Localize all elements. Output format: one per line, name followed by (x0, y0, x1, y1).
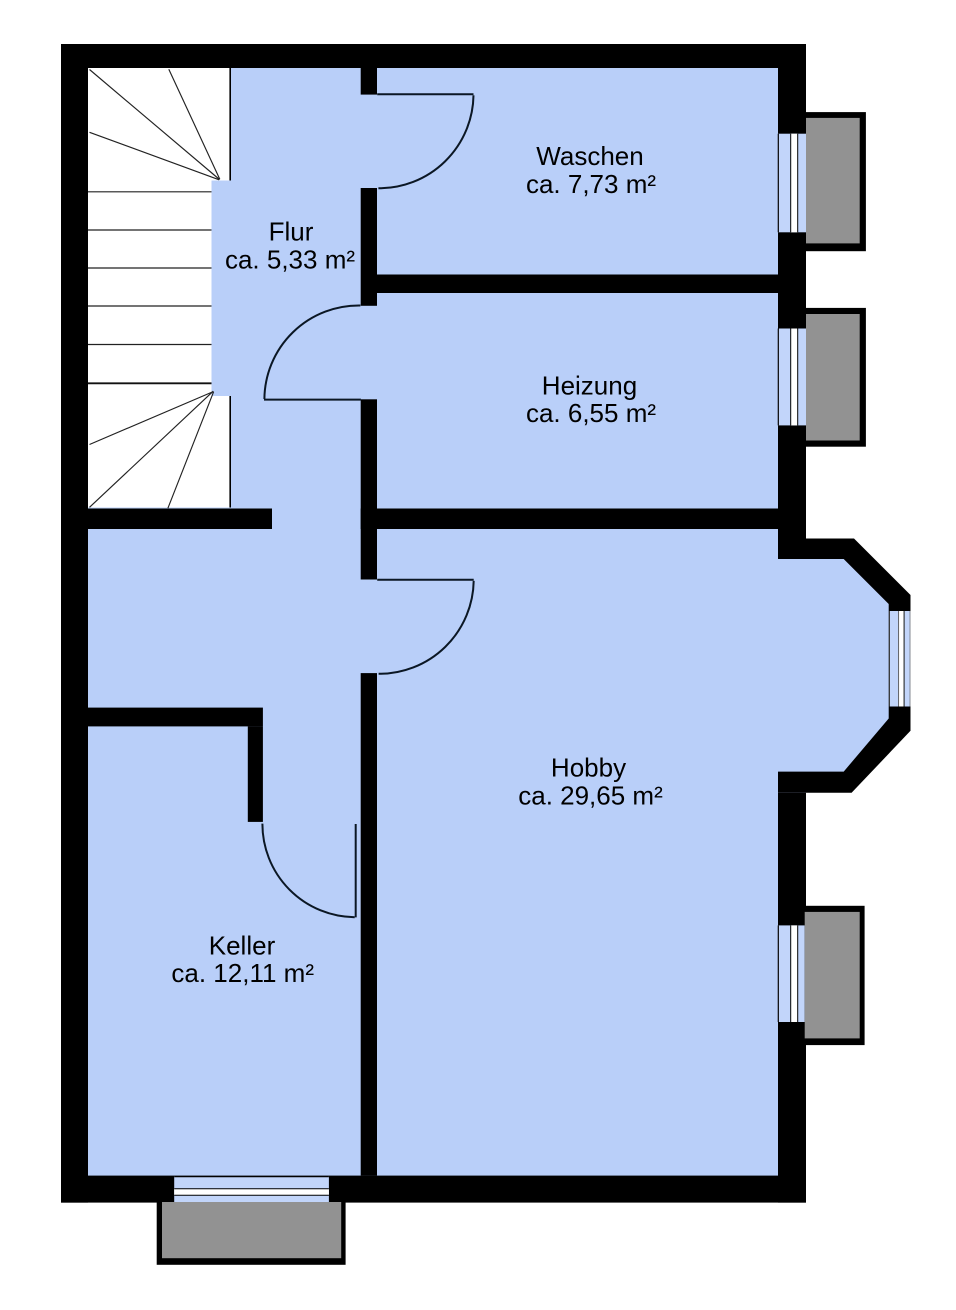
svg-text:ca. 29,65 m²: ca. 29,65 m² (518, 781, 663, 811)
svg-text:Heizung: Heizung (542, 371, 637, 401)
svg-text:ca. 12,11 m²: ca. 12,11 m² (171, 958, 314, 988)
svg-text:Waschen: Waschen (536, 141, 643, 171)
svg-text:ca. 5,33 m²: ca. 5,33 m² (225, 245, 355, 275)
svg-text:Hobby: Hobby (551, 753, 626, 783)
svg-text:Flur: Flur (269, 217, 314, 247)
svg-text:Keller: Keller (209, 931, 276, 961)
svg-text:ca. 6,55 m²: ca. 6,55 m² (526, 398, 656, 428)
svg-text:ca. 7,73 m²: ca. 7,73 m² (526, 169, 656, 199)
